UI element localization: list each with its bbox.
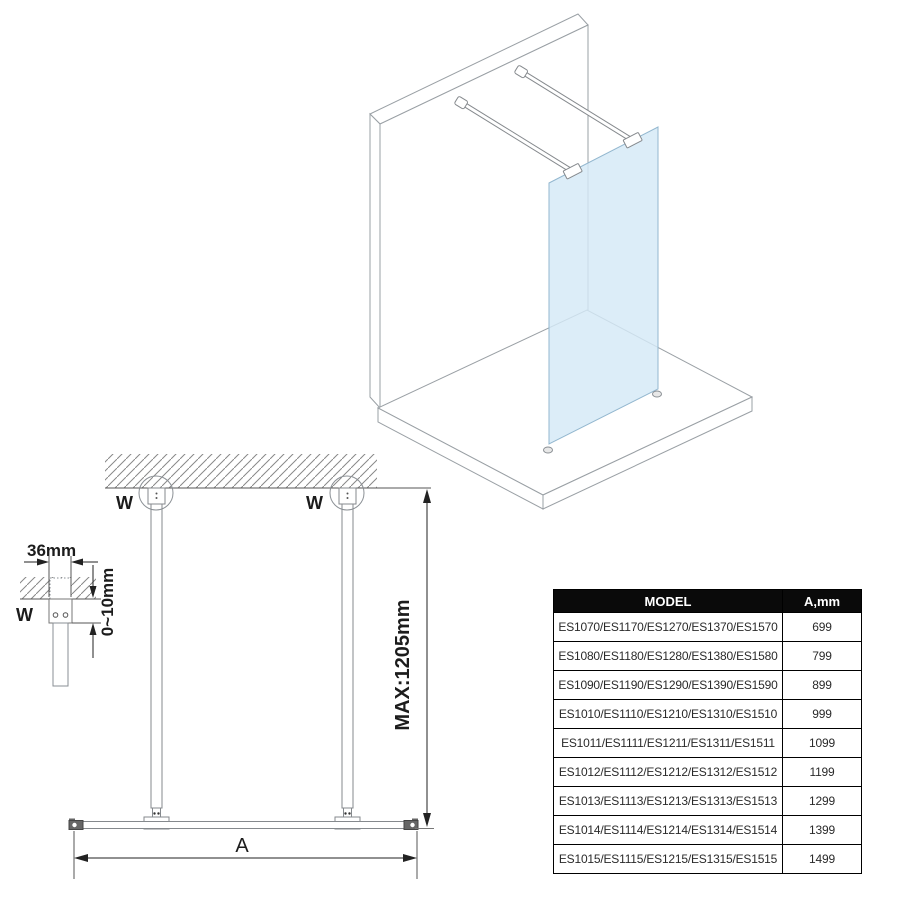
model-cell: ES1080/ES1180/ES1280/ES1380/ES1580 (554, 642, 783, 671)
table-row: ES1090/ES1190/ES1290/ES1390/ES1590 899 (554, 671, 862, 700)
a-mm-cell: 1099 (783, 729, 862, 758)
model-size-table: MODEL A,mm ES1070/ES1170/ES1270/ES1370/E… (553, 589, 862, 874)
table-row: ES1012/ES1112/ES1212/ES1312/ES1512 1199 (554, 758, 862, 787)
table-row: ES1080/ES1180/ES1280/ES1380/ES1580 799 (554, 642, 862, 671)
table-row: ES1011/ES1111/ES1211/ES1311/ES1511 1099 (554, 729, 862, 758)
ceiling-section (105, 454, 431, 488)
table-row: ES1070/ES1170/ES1270/ES1370/ES1570 699 (554, 613, 862, 642)
model-cell: ES1012/ES1112/ES1212/ES1312/ES1512 (554, 758, 783, 787)
table-row: ES1015/ES1115/ES1215/ES1315/ES1515 1499 (554, 845, 862, 874)
elevation-view: W W MAX:1205mm A (16, 454, 434, 879)
a-mm-cell: 799 (783, 642, 862, 671)
model-cell: ES1015/ES1115/ES1215/ES1315/ES1515 (554, 845, 783, 874)
detail-wall-marker: W (16, 605, 33, 625)
ceiling-bar-right (330, 476, 364, 829)
header-a-mm: A,mm (783, 590, 862, 613)
a-mm-cell: 1499 (783, 845, 862, 874)
model-cell: ES1010/ES1110/ES1210/ES1310/ES1510 (554, 700, 783, 729)
a-mm-cell: 1199 (783, 758, 862, 787)
model-cell: ES1070/ES1170/ES1270/ES1370/ES1570 (554, 613, 783, 642)
header-model: MODEL (554, 590, 783, 613)
a-mm-cell: 899 (783, 671, 862, 700)
model-cell: ES1011/ES1111/ES1211/ES1311/ES1511 (554, 729, 783, 758)
dim-max-height (415, 489, 434, 829)
table-row: ES1010/ES1110/ES1210/ES1310/ES1510 999 (554, 700, 862, 729)
a-mm-cell: 1299 (783, 787, 862, 816)
dim-bracket-width-label: 36mm (27, 541, 76, 560)
dim-panel-width-label: A (235, 835, 249, 857)
glass-top-edge (69, 819, 418, 830)
wall-marker-left: W (116, 493, 133, 513)
isometric-view (370, 14, 752, 509)
ceiling-bar-left (139, 476, 173, 829)
wall-marker-right: W (306, 493, 323, 513)
dim-ceiling-gap-label: 0~10mm (98, 568, 117, 637)
table-row: ES1014/ES1114/ES1214/ES1314/ES1514 1399 (554, 816, 862, 845)
table-row: ES1013/ES1113/ES1213/ES1313/ES1513 1299 (554, 787, 862, 816)
wall-profile-cap-left (69, 819, 83, 830)
glass-foot-front (544, 447, 553, 453)
glass-foot-back (653, 391, 662, 397)
model-cell: ES1090/ES1190/ES1290/ES1390/ES1590 (554, 671, 783, 700)
a-mm-cell: 999 (783, 700, 862, 729)
model-cell: ES1013/ES1113/ES1213/ES1313/ES1513 (554, 787, 783, 816)
a-mm-cell: 1399 (783, 816, 862, 845)
a-mm-cell: 699 (783, 613, 862, 642)
dim-max-height-label: MAX:1205mm (392, 599, 414, 730)
model-cell: ES1014/ES1114/ES1214/ES1314/ES1514 (554, 816, 783, 845)
bracket-detail: 36mm 0~10mm W (16, 541, 117, 686)
wall-profile-cap-right (404, 819, 418, 830)
table-header-row: MODEL A,mm (554, 590, 862, 613)
